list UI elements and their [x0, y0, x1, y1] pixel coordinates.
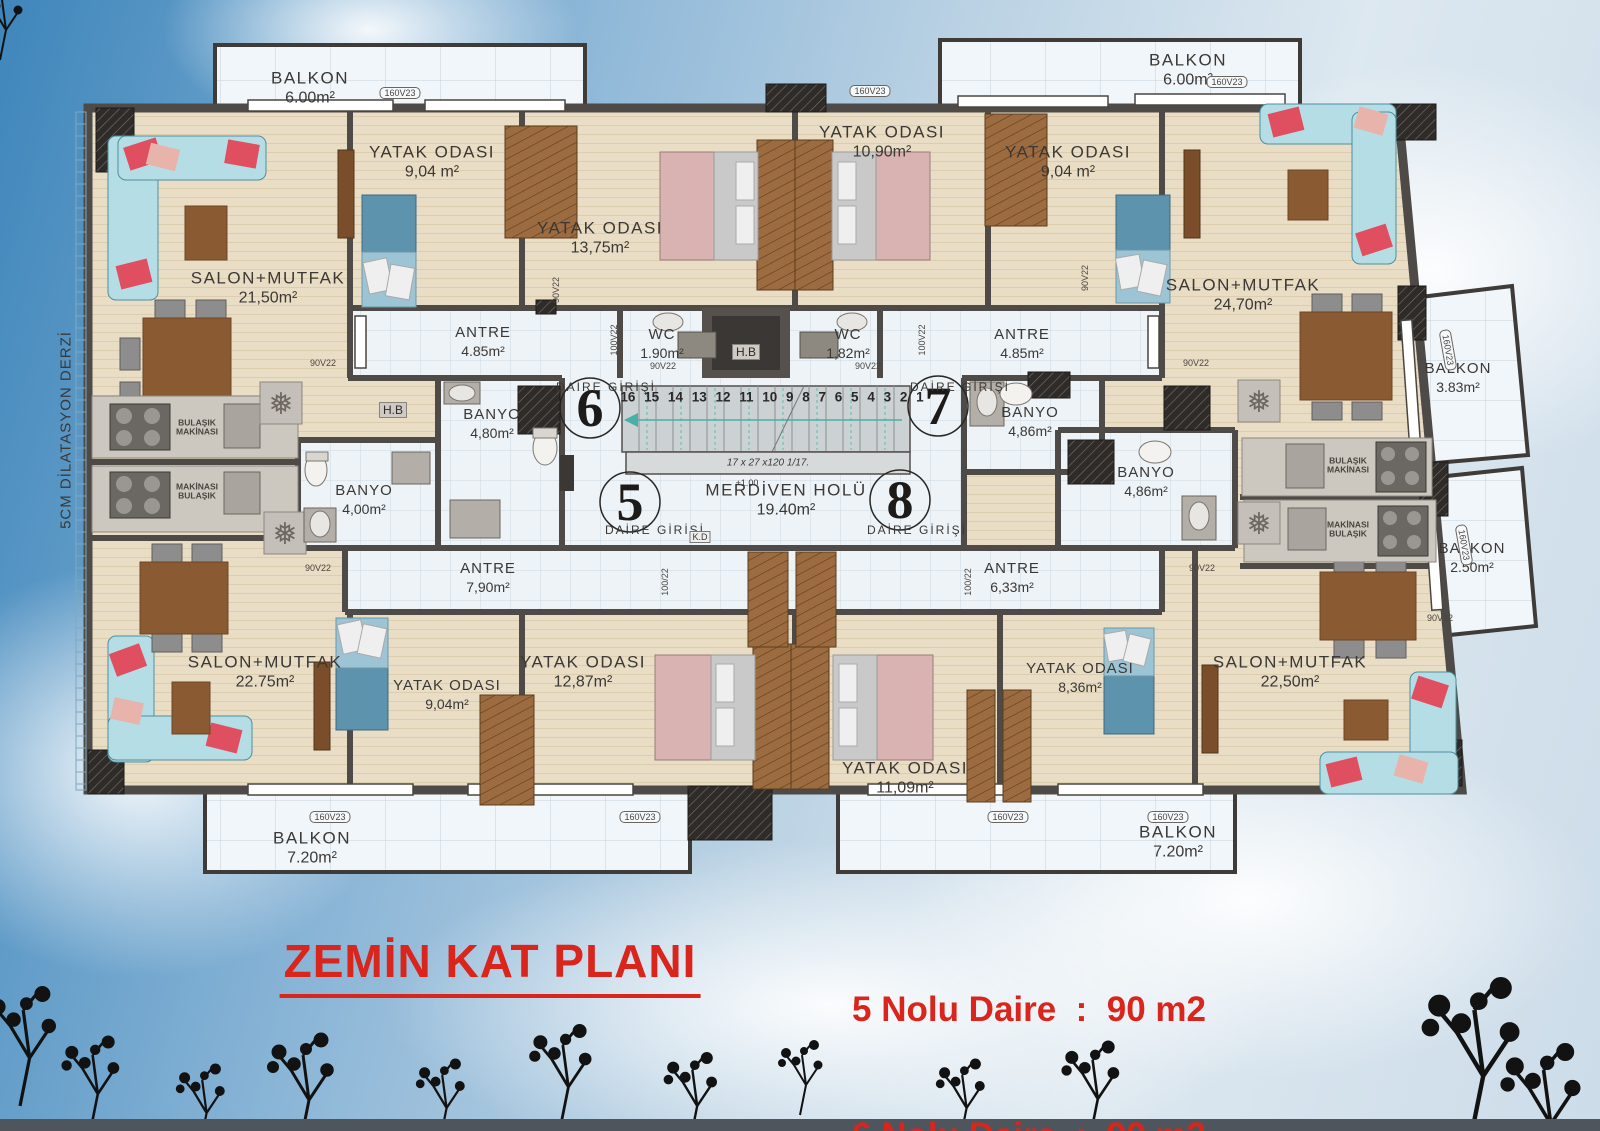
- room-label-yatak-8b: YATAK ODASI11,09m²: [842, 757, 968, 798]
- shaft-label-left: H.B: [379, 402, 407, 418]
- window-label-160v23: 160V23: [619, 811, 660, 823]
- legend-line-1: 5 Nolu Daire : 90 m2: [852, 989, 1206, 1031]
- room-name: ANTRE: [984, 560, 1040, 579]
- room-label-salon-8: SALON+MUTFAK22,50m²: [1213, 651, 1368, 692]
- window-label-90v22: 90V22: [855, 361, 881, 371]
- window-label-90v22: 90V22: [305, 563, 331, 573]
- floor-plan-drawing: ❅ ❅ ❅ ❅: [0, 0, 1600, 1131]
- room-area: 6.00m²: [1163, 71, 1213, 91]
- window-label-160v23: 160V23: [849, 85, 890, 97]
- room-label-balkon-bl: BALKON7.20m²: [273, 827, 351, 868]
- page-title: ZEMİN KAT PLANI: [280, 934, 701, 998]
- room-label-banyo-7: BANYO4,86m²: [1001, 404, 1059, 440]
- room-area: 4.85m²: [461, 343, 505, 361]
- room-name: YATAK ODASI: [819, 121, 945, 142]
- dishwasher-label: MAKİNASI BULAŞIK: [166, 483, 228, 502]
- door-note: K.D: [689, 531, 710, 543]
- room-label-yatak-8a: YATAK ODASI8,36m²: [1026, 660, 1134, 696]
- room-area: 3.83m²: [1436, 379, 1480, 397]
- room-name: BALKON: [1425, 360, 1492, 379]
- room-label-antre-5: ANTRE7,90m²: [460, 560, 516, 596]
- room-area: 19.40m²: [757, 501, 816, 521]
- room-name: BANYO: [463, 406, 521, 425]
- window-label-160v23: 160V23: [309, 811, 350, 823]
- room-label-banyo-6: BANYO4,80m²: [463, 406, 521, 442]
- room-name: WC: [648, 326, 675, 345]
- single-bed-apt6: [362, 195, 416, 307]
- room-area: 1,82m²: [826, 345, 870, 363]
- window-label-90v22: 90V22: [1189, 563, 1215, 573]
- room-name: BANYO: [1001, 404, 1059, 423]
- room-name: BALKON: [271, 67, 349, 88]
- window-label-90v22: 90V22: [1080, 265, 1090, 291]
- room-area: 24,70m²: [1214, 296, 1273, 316]
- window-label-90v22: 90V22: [650, 361, 676, 371]
- apartment-number-8: 8: [887, 469, 914, 531]
- room-area: 12,87m²: [554, 673, 613, 693]
- room-area: 7.20m²: [287, 849, 337, 869]
- dishwasher-label: BULAŞIK MAKİNASI: [1317, 457, 1379, 476]
- floor-plan-screenshot: { "title": "ZEMİN KAT PLANI", "legend": …: [0, 0, 1600, 1131]
- room-name: BALKON: [1149, 49, 1227, 70]
- entrance-label-8: DAİRE GİRİŞİ: [867, 523, 967, 537]
- room-area: 11,09m²: [876, 779, 934, 799]
- room-name: SALON+MUTFAK: [1166, 274, 1321, 295]
- window-label-160v23: 160V23: [987, 811, 1028, 823]
- room-area: 9,04m²: [425, 696, 469, 714]
- room-area: 6,33m²: [990, 579, 1034, 597]
- room-area: 1.90m²: [640, 345, 684, 363]
- coffee-table-apt7: [1288, 170, 1328, 220]
- room-name: WC: [834, 326, 861, 345]
- stair-tread-numbers: 16 15 14 13 12 11 10 9 8 7 6 5 4 3 2 1: [620, 390, 923, 405]
- dishwasher-label: MAKİNASI BULAŞIK: [1317, 521, 1379, 540]
- room-name: YATAK ODASI: [537, 217, 663, 238]
- room-label-merdiven: MERDİVEN HOLÜ19.40m²: [705, 479, 866, 520]
- room-area: 8,36m²: [1058, 679, 1102, 697]
- window-label-90v22: 90V22: [1183, 358, 1209, 368]
- room-area: 4.85m²: [1000, 345, 1044, 363]
- window-label-90v22: 90V22: [551, 277, 561, 303]
- room-area: 7.20m²: [1153, 843, 1203, 863]
- room-name: ANTRE: [994, 326, 1050, 345]
- room-area: 7,90m²: [466, 579, 510, 597]
- svg-text:❅: ❅: [268, 388, 293, 421]
- room-label-yatak-7a: YATAK ODASI9,04 m²: [1005, 141, 1131, 182]
- room-label-wc-6: WC1.90m²: [640, 326, 684, 362]
- room-label-balkon-br: BALKON7.20m²: [1139, 821, 1217, 862]
- shaft-label-top: H.B: [732, 344, 760, 360]
- room-label-salon-6: SALON+MUTFAK21,50m²: [191, 267, 346, 308]
- room-area: 21,50m²: [239, 289, 298, 309]
- room-label-antre-7: ANTRE4.85m²: [994, 326, 1050, 362]
- room-name: ANTRE: [455, 324, 511, 343]
- dishwasher-label: BULAŞIK MAKİNASI: [166, 419, 228, 438]
- room-area: 9,04 m²: [405, 163, 459, 183]
- dilatation-note: 5CM DİLATASYON DERZİ: [58, 331, 75, 529]
- window-label-100-22: 100/22: [963, 568, 973, 596]
- room-label-yatak-5a: YATAK ODASI9,04m²: [393, 677, 501, 713]
- room-name: YATAK ODASI: [1005, 141, 1131, 162]
- bottom-bar: [0, 1119, 1600, 1131]
- room-label-yatak-7b: YATAK ODASI10,90m²: [819, 121, 945, 162]
- stair-dimension-note: 17 x 27 x120 1/17.: [727, 458, 809, 469]
- room-label-salon-7: SALON+MUTFAK24,70m²: [1166, 274, 1321, 315]
- room-label-yatak-5b: YATAK ODASI12,87m²: [520, 651, 646, 692]
- room-label-salon-5: SALON+MUTFAK22.75m²: [188, 651, 343, 692]
- entrance-label-7: DAİRE GİRİŞİ: [910, 380, 1010, 394]
- room-name: YATAK ODASI: [393, 677, 501, 696]
- room-area: 4,80m²: [470, 425, 514, 443]
- svg-text:❅: ❅: [1246, 386, 1271, 419]
- room-label-yatak-6b: YATAK ODASI13,75m²: [537, 217, 663, 258]
- room-name: ANTRE: [460, 560, 516, 579]
- room-name: MERDİVEN HOLÜ: [705, 479, 866, 500]
- room-name: YATAK ODASI: [1026, 660, 1134, 679]
- room-name: SALON+MUTFAK: [1213, 651, 1368, 672]
- window-label-90v22: 90V22: [310, 358, 336, 368]
- room-name: BALKON: [1139, 821, 1217, 842]
- room-area: 4,86m²: [1008, 423, 1052, 441]
- room-name: BANYO: [1117, 464, 1175, 483]
- room-label-yatak-6a: YATAK ODASI9,04 m²: [369, 141, 495, 182]
- room-name: BANYO: [335, 482, 393, 501]
- room-name: YATAK ODASI: [520, 651, 646, 672]
- legend-line-2: 6 Nolu Daire : 90 m2: [852, 1115, 1206, 1131]
- room-area: 13,75m²: [571, 239, 630, 259]
- room-name: YATAK ODASI: [369, 141, 495, 162]
- single-bed-apt7: [1115, 195, 1170, 303]
- coffee-table-apt6: [185, 206, 227, 260]
- room-name: BALKON: [273, 827, 351, 848]
- room-label-banyo-8: BANYO4,86m²: [1117, 464, 1175, 500]
- room-area: 6.00m²: [285, 89, 335, 109]
- room-label-wc-7: WC1,82m²: [826, 326, 870, 362]
- coffee-table-apt8: [1344, 700, 1388, 740]
- window-label-90v22: 90V22: [1427, 613, 1453, 623]
- window-label-100v22: 100V22: [917, 324, 927, 355]
- room-area: 4,00m²: [342, 501, 386, 519]
- room-name: SALON+MUTFAK: [191, 267, 346, 288]
- room-label-balkon-tl: BALKON6.00m²: [271, 67, 349, 108]
- room-label-antre-8: ANTRE6,33m²: [984, 560, 1040, 596]
- room-name: SALON+MUTFAK: [188, 651, 343, 672]
- apartment-legend: 5 Nolu Daire : 90 m2 6 Nolu Daire : 90 m…: [852, 905, 1206, 1131]
- room-area: 22,50m²: [1261, 673, 1320, 693]
- window-label-160v23: 160V23: [1206, 76, 1247, 88]
- room-label-antre-6: ANTRE4.85m²: [455, 324, 511, 360]
- svg-text:❅: ❅: [272, 518, 297, 551]
- room-label-balkon-r1: BALKON3.83m²: [1425, 360, 1492, 396]
- single-bed-apt5: [336, 618, 388, 730]
- svg-text:❅: ❅: [1246, 508, 1271, 541]
- window-label-100-22: 100/22: [660, 568, 670, 596]
- room-name: YATAK ODASI: [842, 757, 968, 778]
- room-area: 4,86m²: [1124, 483, 1168, 501]
- room-label-banyo-5: BANYO4,00m²: [335, 482, 393, 518]
- window-label-160v23: 160V23: [379, 87, 420, 99]
- window-label-100v22: 100V22: [609, 324, 619, 355]
- window-label-160v23: 160V23: [1147, 811, 1188, 823]
- room-area: 9,04 m²: [1041, 163, 1095, 183]
- room-area: 10,90m²: [853, 143, 912, 163]
- elevation-marker: +1.00: [736, 478, 759, 488]
- room-area: 22.75m²: [236, 673, 295, 693]
